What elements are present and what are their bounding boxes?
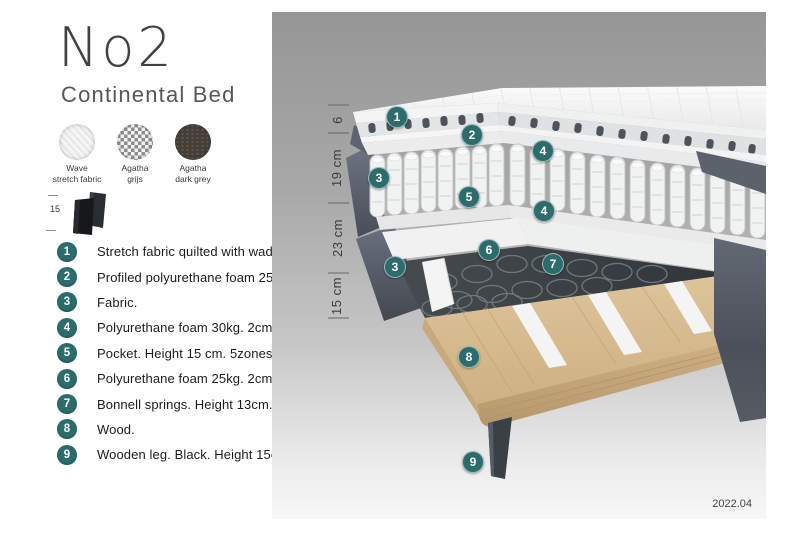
- swatch-label: Agatha: [108, 163, 162, 174]
- diagram-marker-4-lower: 4: [533, 200, 555, 222]
- measurement-label-15cm: 15 cm: [330, 261, 344, 331]
- black-leg-icon: [70, 188, 116, 240]
- version-stamp: 2022.04: [712, 498, 752, 510]
- legend-number-badge: 5: [57, 343, 77, 363]
- swatch-label: dark grey: [166, 174, 220, 185]
- wave-fabric-icon: [59, 124, 95, 160]
- leg-tick-top: [48, 195, 58, 196]
- diagram-marker-3-upper: 3: [368, 167, 390, 189]
- legend-number-badge: 9: [57, 445, 77, 465]
- legend-text: Wooden leg. Black. Height 15cm.: [97, 447, 292, 462]
- measurement-label-19cm: 19 cm: [330, 133, 344, 203]
- diagram-marker-2: 2: [461, 124, 483, 146]
- leg-photo-thumbnail: 15: [42, 188, 122, 240]
- agatha-grijs-fabric-icon: [117, 124, 153, 160]
- swatch-label: Wave: [50, 163, 104, 174]
- legend-text: Wood.: [97, 422, 135, 437]
- diagram-marker-3-lower: 3: [384, 256, 406, 278]
- diagram-marker-8: 8: [458, 346, 480, 368]
- left-info-panel: No2 Continental Bed Wave stretch fabric …: [0, 0, 272, 533]
- product-subtitle: Continental Bed: [61, 82, 236, 108]
- diagram-marker-9: 9: [462, 451, 484, 473]
- legend-number-badge: 2: [57, 267, 77, 287]
- leg-tick-bottom: [46, 230, 56, 231]
- legend-number-badge: 6: [57, 369, 77, 389]
- swatch-label: stretch fabric: [50, 174, 104, 185]
- legend-text: Stretch fabric quilted with wadding.: [97, 244, 301, 259]
- fabric-swatches: Wave stretch fabric Agatha grijs Agatha …: [50, 124, 220, 184]
- legend-number-badge: 7: [57, 394, 77, 414]
- diagram-marker-1: 1: [386, 106, 408, 128]
- diagram-marker-7: 7: [542, 253, 564, 275]
- swatch-wave: Wave stretch fabric: [50, 124, 104, 184]
- diagram-panel: 6 19 cm 23 cm 15 cm 1 2 4 3 5 4 6 7 3 8 …: [272, 12, 766, 519]
- diagram-marker-5: 5: [458, 186, 480, 208]
- swatch-label: grijs: [108, 174, 162, 185]
- bed-cutaway-illustration: [272, 12, 766, 519]
- product-title: No2: [58, 16, 175, 79]
- swatch-agatha-grijs: Agatha grijs: [108, 124, 162, 184]
- legend-text: Polyurethane foam 25kg. 2cm.: [97, 371, 276, 386]
- legend-number-badge: 3: [57, 292, 77, 312]
- legend-text: Polyurethane foam 30kg. 2cm.: [97, 320, 276, 335]
- legend-text: Bonnell springs. Height 13cm.: [97, 397, 273, 412]
- diagram-marker-4-upper: 4: [532, 140, 554, 162]
- legend-number-badge: 8: [57, 419, 77, 439]
- legend-text: Pocket. Height 15 cm. 5zones.: [97, 346, 276, 361]
- swatch-agatha-dark: Agatha dark grey: [166, 124, 220, 184]
- page: No2 Continental Bed Wave stretch fabric …: [0, 0, 800, 533]
- agatha-dark-grey-fabric-icon: [175, 124, 211, 160]
- leg-height-label: 15: [50, 204, 60, 214]
- diagram-marker-6: 6: [478, 239, 500, 261]
- swatch-label: Agatha: [166, 163, 220, 174]
- legend-number-badge: 4: [57, 318, 77, 338]
- legend-number-badge: 1: [57, 242, 77, 262]
- legend-text: Fabric.: [97, 295, 137, 310]
